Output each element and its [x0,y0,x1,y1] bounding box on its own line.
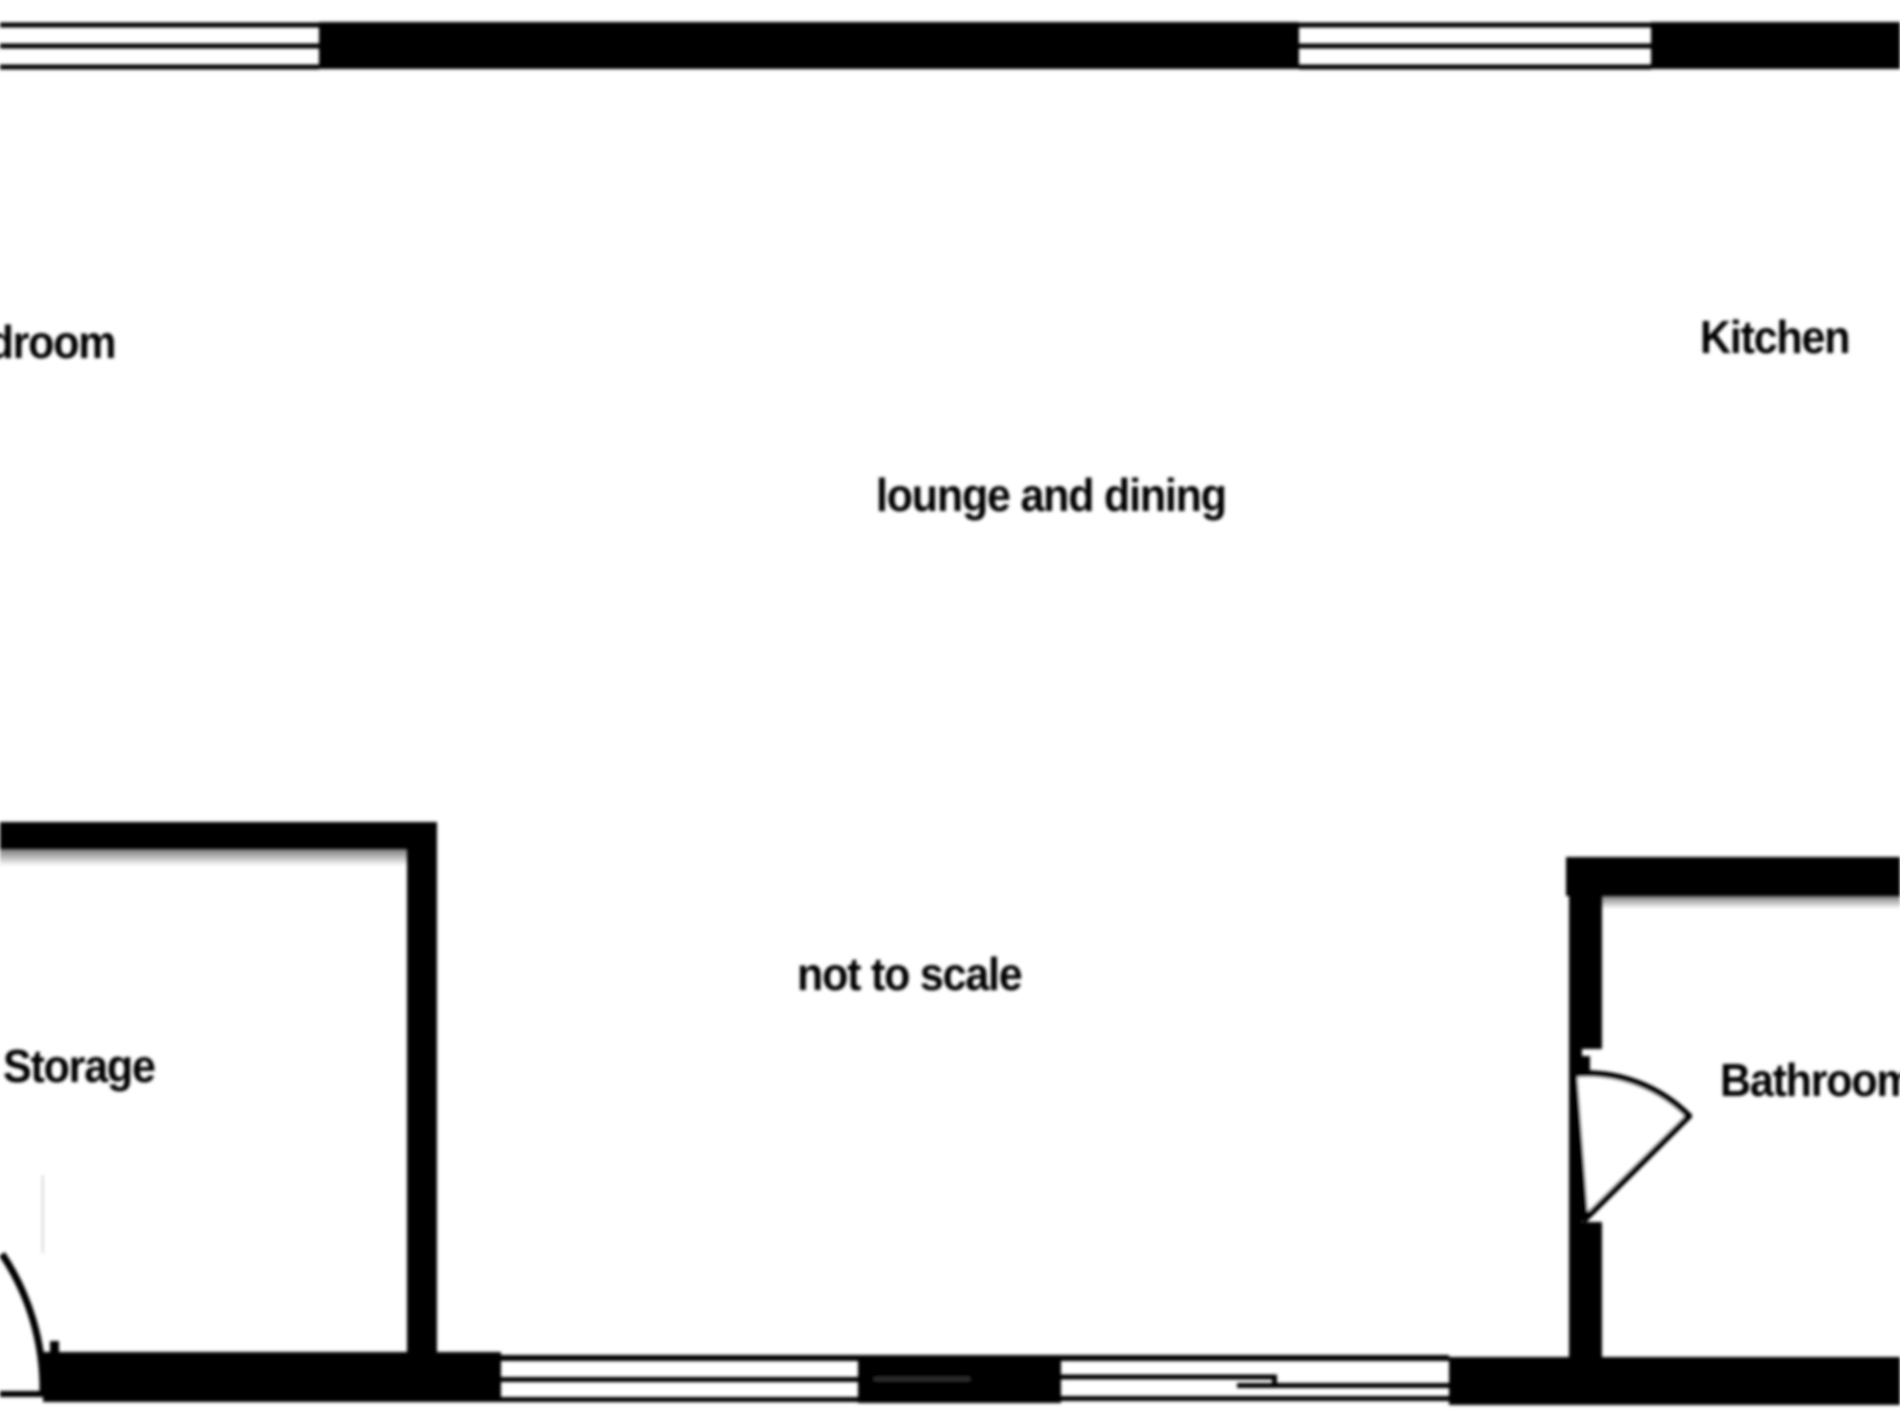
svg-text:not to scale: not to scale [797,948,1022,1000]
svg-text:Storage: Storage [3,1040,155,1092]
svg-text:lounge and dining: lounge and dining [876,469,1226,521]
svg-text:Bedroom: Bedroom [0,316,115,368]
svg-text:Kitchen: Kitchen [1700,311,1849,363]
svg-text:Bathroom: Bathroom [1720,1054,1900,1106]
